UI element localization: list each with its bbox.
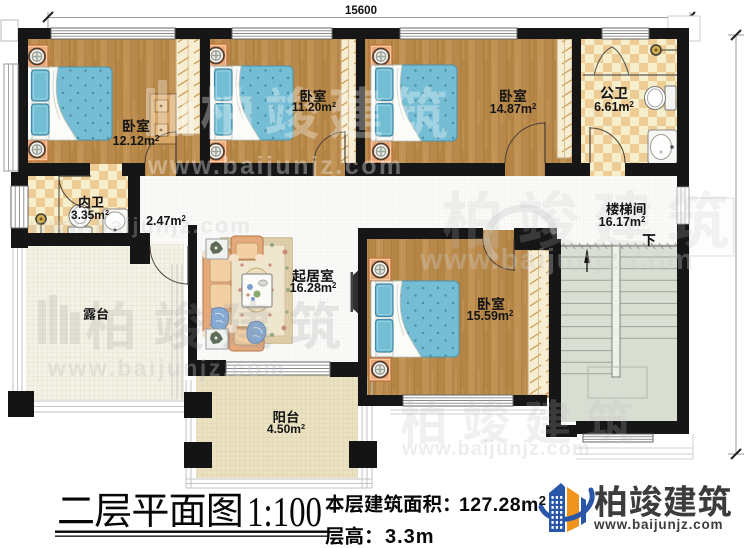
svg-text:14.87m2: 14.87m2 <box>490 102 537 116</box>
svg-text:www.baijunjz.com: www.baijunjz.com <box>401 438 591 460</box>
svg-text:2.47m2: 2.47m2 <box>146 214 186 228</box>
svg-text:3.3m: 3.3m <box>385 526 435 548</box>
svg-text:15.59m2: 15.59m2 <box>467 309 514 323</box>
svg-text:12.12m2: 12.12m2 <box>113 134 160 148</box>
svg-text:11.20m2: 11.20m2 <box>292 100 336 114</box>
svg-text:www.baijunjz.com: www.baijunjz.com <box>147 152 404 180</box>
svg-text:4.50m2: 4.50m2 <box>267 422 305 436</box>
svg-text:16.17m2: 16.17m2 <box>599 215 646 229</box>
svg-text:www.baijunjz.com: www.baijunjz.com <box>419 244 694 276</box>
svg-text:www.baijunjz.com: www.baijunjz.com <box>47 355 287 381</box>
svg-text:6.61m2: 6.61m2 <box>594 100 634 114</box>
svg-text:www.baijunjz.com: www.baijunjz.com <box>593 517 723 532</box>
svg-text:127.28m2: 127.28m2 <box>459 493 546 516</box>
svg-text:1:100: 1:100 <box>247 490 322 536</box>
svg-text:3.35m2: 3.35m2 <box>71 208 109 222</box>
svg-text:16.28m2: 16.28m2 <box>290 281 337 295</box>
svg-text:www.baijunjz.com: www.baijunjz.com <box>29 213 252 238</box>
svg-text:15600: 15600 <box>345 5 377 17</box>
